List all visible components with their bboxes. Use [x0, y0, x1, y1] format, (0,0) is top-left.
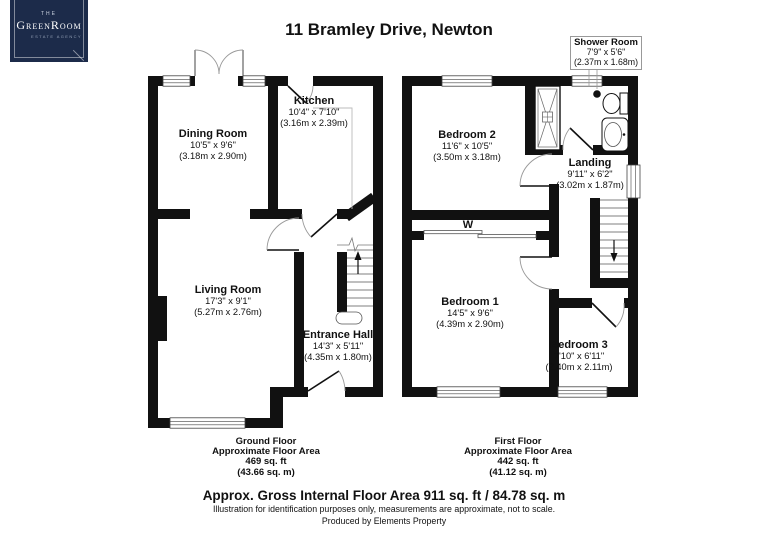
- room-label-kitchen: Kitchen 10'4" x 7'10" (3.16m x 2.39m): [280, 96, 348, 128]
- room-size-metric: (3.16m x 2.39m): [280, 118, 348, 129]
- down-arrow-icon: [611, 253, 618, 262]
- floor-plan-graphics: [0, 0, 768, 543]
- up-arrow-icon: [355, 251, 362, 260]
- room-size-metric: (3.02m x 1.87m): [556, 180, 624, 191]
- window: [572, 76, 602, 86]
- bedroom3-door: [592, 303, 624, 327]
- stair-newel: [336, 312, 362, 324]
- window: [442, 76, 492, 86]
- room-name: Dining Room: [179, 129, 247, 140]
- room-name: Entrance Hall: [303, 330, 373, 341]
- room-name: Bedroom 3: [546, 340, 613, 351]
- room-size-metric: (4.35m x 1.80m): [303, 352, 373, 363]
- bedroom2-door: [520, 154, 552, 186]
- room-size-imperial: 10'5" x 9'6": [179, 140, 247, 151]
- french-doors: [195, 50, 243, 76]
- room-size-metric: (4.39m x 2.90m): [436, 319, 504, 330]
- room-size-metric: (3.50m x 3.18m): [433, 152, 501, 163]
- window: [163, 76, 190, 86]
- room-name: Bedroom 2: [433, 130, 501, 141]
- gross-area-text: Approx. Gross Internal Floor Area 911 sq…: [203, 488, 566, 503]
- room-label-living-room: Living Room 17'3" x 9'1" (5.27m x 2.76m): [194, 285, 262, 317]
- room-size-metric: (3.18m x 2.90m): [179, 151, 247, 162]
- bedroom1-door: [520, 257, 552, 289]
- room-size-imperial: 9'11" x 6'2": [556, 169, 624, 180]
- window: [558, 387, 607, 397]
- room-label-shower-room: Shower Room 7'9" x 5'6" (2.37m x 1.68m): [570, 36, 642, 70]
- room-label-bedroom-2: Bedroom 2 11'6" x 10'5" (3.50m x 3.18m): [433, 130, 501, 162]
- room-size-imperial: 17'3" x 9'1": [194, 296, 262, 307]
- room-size-imperial: 14'3" x 5'11": [303, 341, 373, 352]
- room-name: Landing: [556, 158, 624, 169]
- window: [170, 418, 245, 428]
- room-label-dining-room: Dining Room 10'5" x 9'6" (3.18m x 2.90m): [179, 129, 247, 161]
- window: [243, 76, 265, 86]
- window: [437, 387, 500, 397]
- room-label-entrance-hall: Entrance Hall 14'3" x 5'11" (4.35m x 1.8…: [303, 330, 373, 362]
- room-label-bedroom-1: Bedroom 1 14'5" x 9'6" (4.39m x 2.90m): [436, 297, 504, 329]
- room-size-imperial: 11'6" x 10'5": [433, 141, 501, 152]
- first-floor-caption: First Floor Approximate Floor Area 442 s…: [464, 437, 572, 478]
- room-size-imperial: 7'10" x 6'11": [546, 351, 613, 362]
- room-name: Living Room: [194, 285, 262, 296]
- produced-by-text: Produced by Elements Property: [322, 516, 446, 526]
- window: [627, 165, 640, 198]
- room-size-metric: (5.27m x 2.76m): [194, 307, 262, 318]
- disclaimer-text: Illustration for identification purposes…: [213, 504, 555, 514]
- shower-enclosure: [535, 86, 560, 150]
- room-size-imperial: 10'4" x 7'10": [280, 107, 348, 118]
- room-label-landing: Landing 9'11" x 6'2" (3.02m x 1.87m): [556, 158, 624, 190]
- shower-room-door: [563, 128, 593, 150]
- wardrobe-sliding-door: [424, 231, 536, 238]
- room-size-metric: (2.40m x 2.11m): [546, 362, 613, 373]
- living-room-door: [267, 218, 299, 250]
- stairs-down: [600, 200, 628, 272]
- wardrobe-label: W: [463, 219, 473, 231]
- room-size-metric: (2.37m x 1.68m): [571, 58, 641, 68]
- floorplan-page: THE GreenRoom ESTATE AGENCY 11 Bramley D…: [0, 0, 768, 543]
- caption-line: (43.66 sq. m): [212, 468, 320, 478]
- room-name: Bedroom 1: [436, 297, 504, 308]
- room-name: Kitchen: [280, 96, 348, 107]
- toilet: [603, 93, 628, 114]
- caption-line: (41.12 sq. m): [464, 468, 572, 478]
- room-label-bedroom-3: Bedroom 3 7'10" x 6'11" (2.40m x 2.11m): [546, 340, 613, 372]
- front-door: [308, 371, 345, 391]
- wash-basin: [602, 118, 628, 151]
- stair-break-line: [337, 238, 373, 251]
- room-size-imperial: 14'5" x 9'6": [436, 308, 504, 319]
- kitchen-hall-door: [302, 214, 337, 237]
- chimney-breast: [148, 296, 167, 341]
- ground-floor-caption: Ground Floor Approximate Floor Area 469 …: [212, 437, 320, 478]
